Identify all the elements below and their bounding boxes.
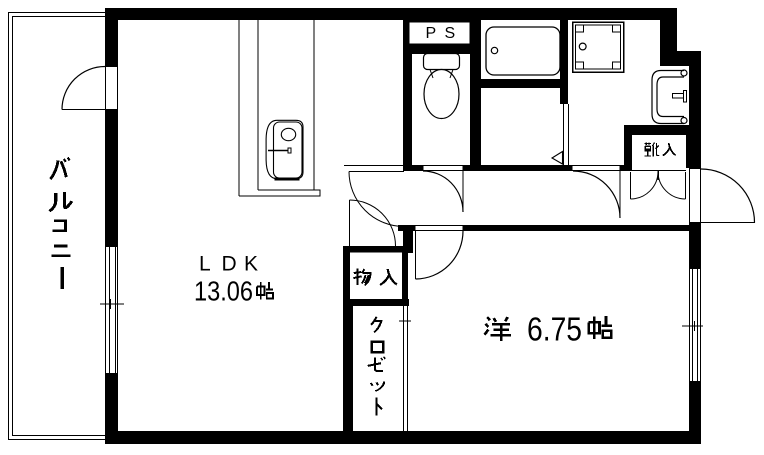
svg-text:L: L [199, 253, 211, 276]
svg-text:D: D [222, 253, 237, 276]
svg-text:6.75: 6.75 [527, 311, 582, 348]
svg-text:13.06: 13.06 [194, 276, 253, 307]
svg-text:P: P [426, 25, 437, 42]
svg-text:S: S [445, 25, 456, 42]
svg-text:K: K [244, 253, 258, 276]
